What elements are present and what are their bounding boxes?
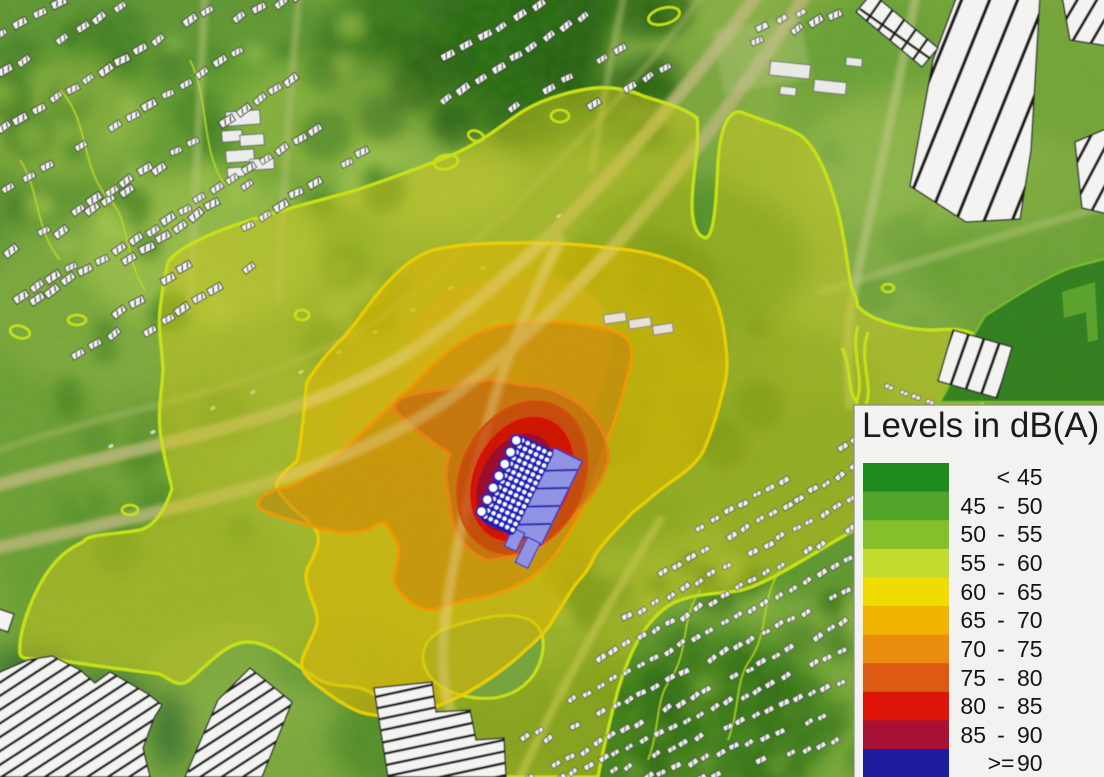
svg-text:-: - — [997, 579, 1005, 605]
svg-text:Levels in dB(A): Levels in dB(A) — [862, 406, 1099, 445]
svg-text:75: 75 — [1017, 636, 1043, 662]
svg-text:-: - — [997, 693, 1005, 719]
svg-text:90: 90 — [1017, 750, 1043, 776]
svg-text:55: 55 — [960, 550, 986, 576]
svg-text:70: 70 — [960, 636, 986, 662]
svg-text:-: - — [997, 493, 1005, 519]
svg-text:70: 70 — [1017, 607, 1043, 633]
svg-text:-: - — [997, 665, 1005, 691]
svg-text:-: - — [997, 607, 1005, 633]
svg-text:45: 45 — [1017, 464, 1043, 490]
svg-text:90: 90 — [1017, 722, 1043, 748]
svg-text:60: 60 — [960, 579, 986, 605]
svg-text:80: 80 — [960, 693, 986, 719]
svg-text:85: 85 — [1017, 693, 1043, 719]
svg-text:80: 80 — [1017, 665, 1043, 691]
svg-text:65: 65 — [960, 607, 986, 633]
svg-text:<: < — [992, 464, 1010, 490]
svg-text:85: 85 — [960, 722, 986, 748]
svg-text:50: 50 — [960, 521, 986, 547]
svg-text:50: 50 — [1017, 493, 1043, 519]
svg-text:55: 55 — [1017, 521, 1043, 547]
svg-text:60: 60 — [1017, 550, 1043, 576]
svg-text:45: 45 — [960, 493, 986, 519]
svg-text:65: 65 — [1017, 579, 1043, 605]
svg-text:75: 75 — [960, 665, 986, 691]
svg-text:-: - — [997, 521, 1005, 547]
svg-text:-: - — [997, 550, 1005, 576]
svg-text:>=: >= — [988, 750, 1015, 776]
svg-text:-: - — [997, 636, 1005, 662]
svg-text:-: - — [997, 722, 1005, 748]
